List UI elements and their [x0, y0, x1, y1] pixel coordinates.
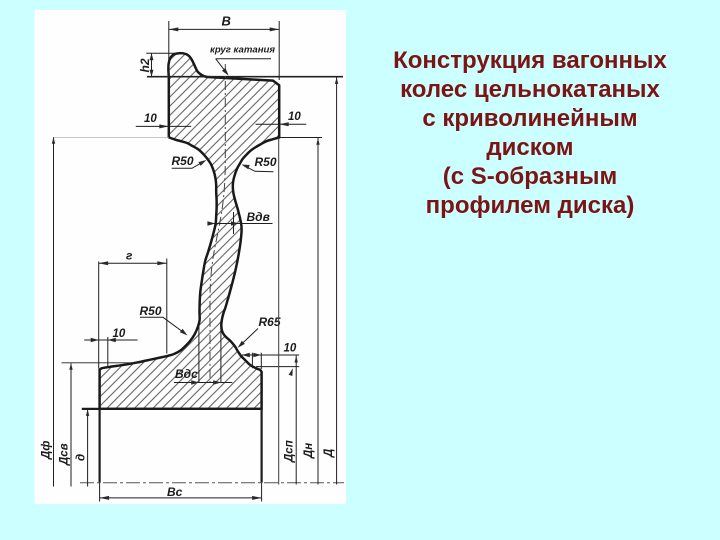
svg-text:д: д [76, 454, 88, 461]
svg-text:R50: R50 [140, 304, 162, 318]
svg-text:Дф: Дф [41, 441, 53, 460]
svg-text:г: г [126, 249, 133, 263]
svg-text:круг катания: круг катания [210, 45, 275, 56]
svg-text:R50: R50 [255, 155, 277, 169]
svg-text:R50: R50 [172, 154, 194, 168]
svg-text:Дн: Дн [303, 443, 315, 459]
svg-text:10: 10 [284, 343, 297, 355]
svg-text:Вс: Вс [167, 485, 183, 499]
svg-text:Д: Д [323, 449, 335, 458]
svg-text:Дсп: Дсп [284, 440, 296, 463]
svg-text:B: B [222, 14, 231, 29]
svg-text:Вдв: Вдв [247, 210, 270, 224]
svg-text:Дсв: Дсв [59, 443, 71, 466]
svg-text:Вдс: Вдс [175, 367, 198, 381]
svg-text:h2: h2 [138, 58, 152, 72]
svg-text:R65: R65 [259, 315, 281, 329]
svg-text:10: 10 [113, 328, 126, 340]
svg-text:10: 10 [144, 113, 157, 125]
svg-text:10: 10 [288, 111, 301, 123]
